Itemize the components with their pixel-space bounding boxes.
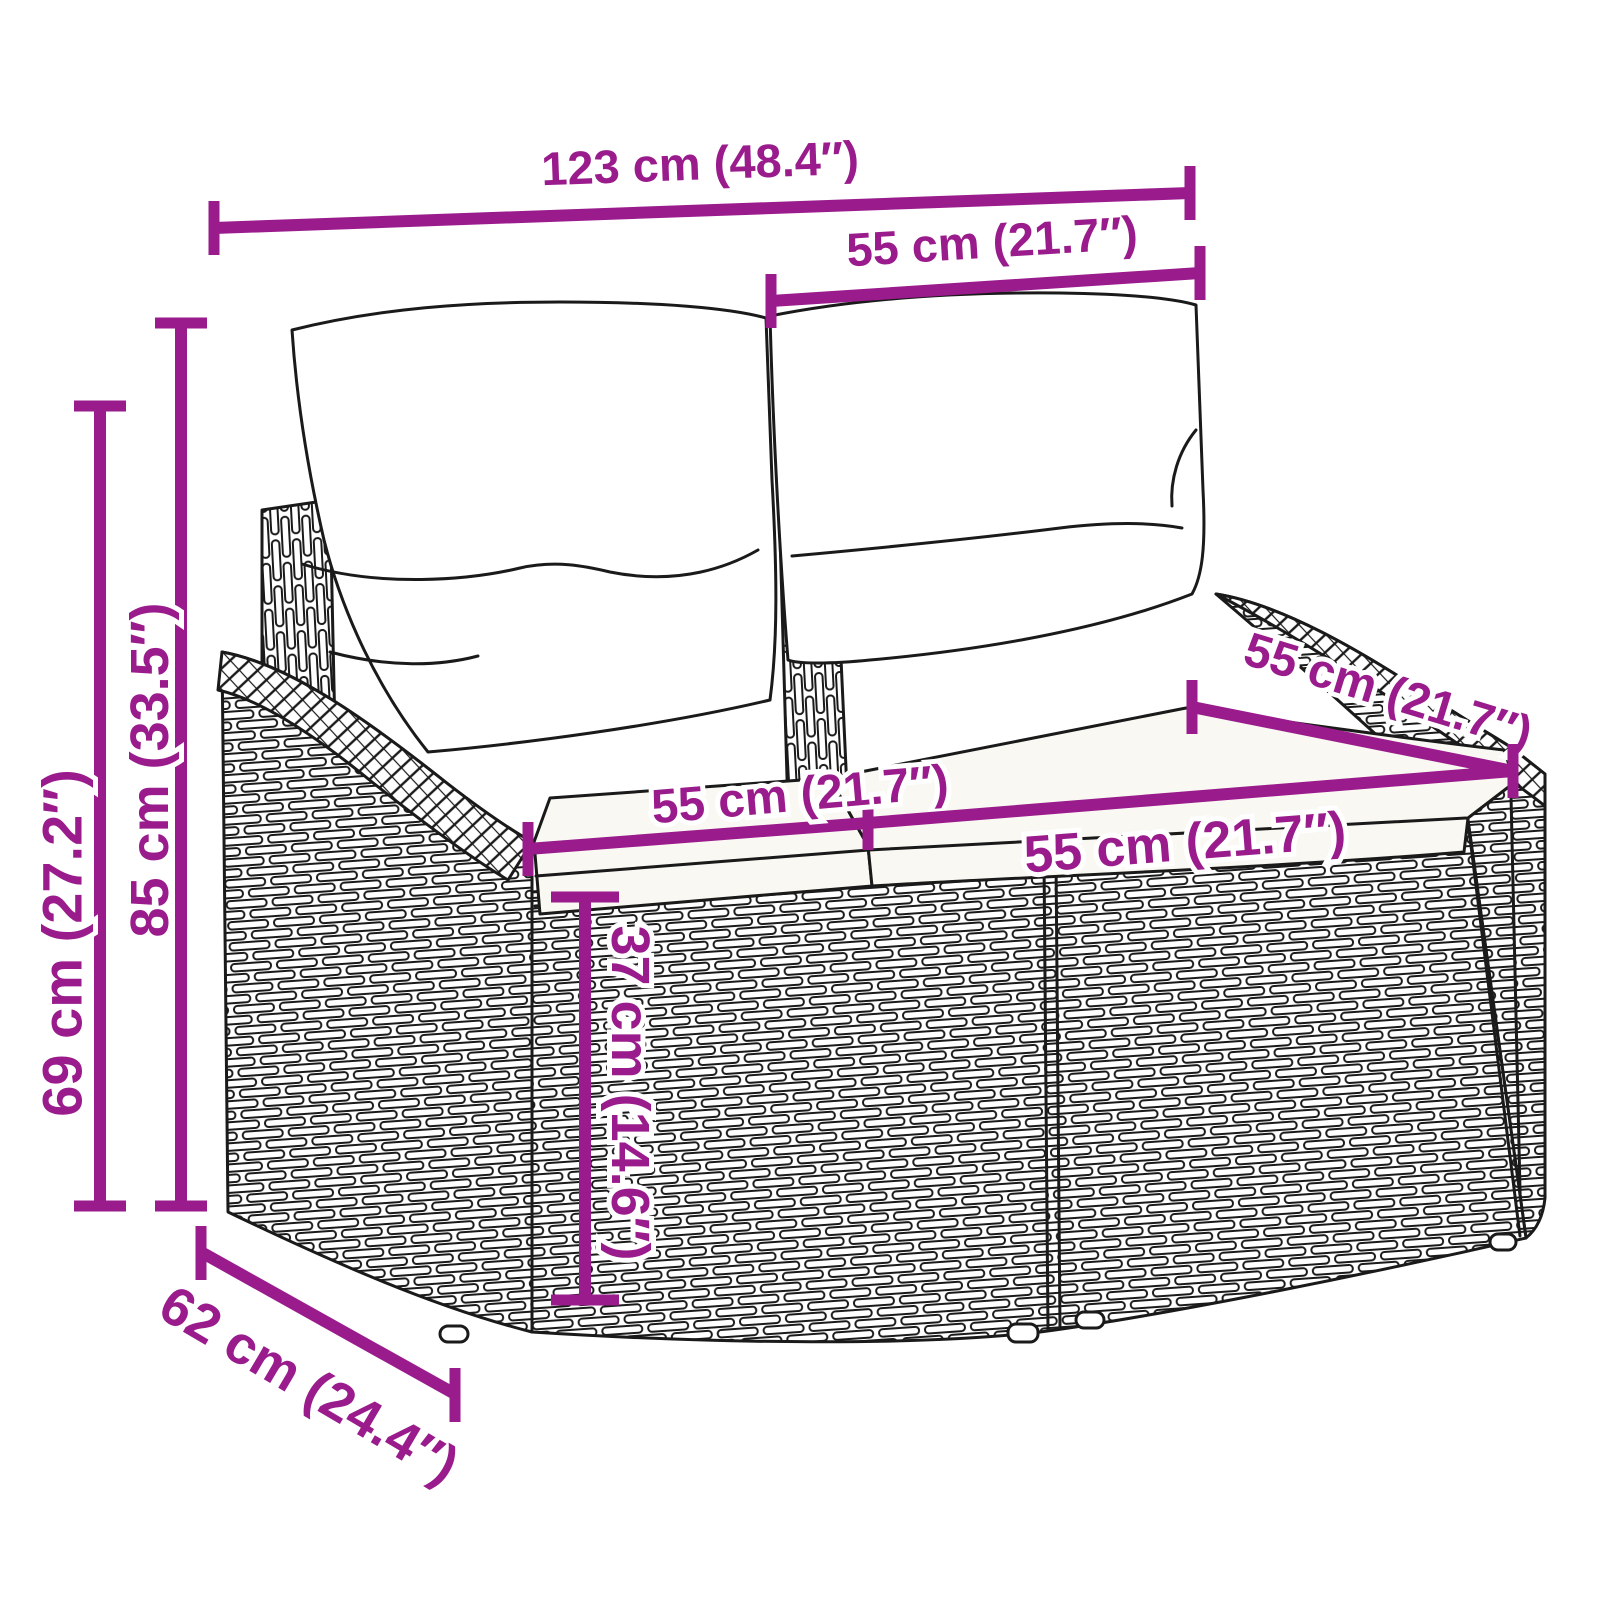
sofa-foot bbox=[1008, 1324, 1038, 1342]
dim-armrest-height: 69 cm (27.2″) bbox=[31, 406, 127, 1206]
sofa-foot bbox=[1490, 1234, 1516, 1250]
sofa-foot bbox=[440, 1326, 468, 1342]
dimension-diagram: 123 cm (48.4″) 55 cm (21.7″) 55 cm (21.7… bbox=[0, 0, 1600, 1600]
dim-armrest-height-label: 69 cm (27.2″) bbox=[31, 769, 94, 1116]
armrest-left bbox=[218, 652, 532, 1332]
diagram-canvas: 123 cm (48.4″) 55 cm (21.7″) 55 cm (21.7… bbox=[0, 0, 1600, 1600]
dim-seat-front-height-label: 37 cm (14.6″) bbox=[600, 925, 660, 1260]
dim-overall-width-label: 123 cm (48.4″) bbox=[540, 131, 859, 196]
back-cushion-right bbox=[770, 293, 1204, 663]
dim-back-cushion-width-label: 55 cm (21.7″) bbox=[845, 206, 1139, 277]
sofa-foot bbox=[1076, 1312, 1104, 1328]
back-cushion-left bbox=[292, 302, 776, 752]
dim-total-height-label: 85 cm (33.5″) bbox=[120, 602, 180, 937]
dim-total-height: 85 cm (33.5″) bbox=[120, 323, 207, 1206]
